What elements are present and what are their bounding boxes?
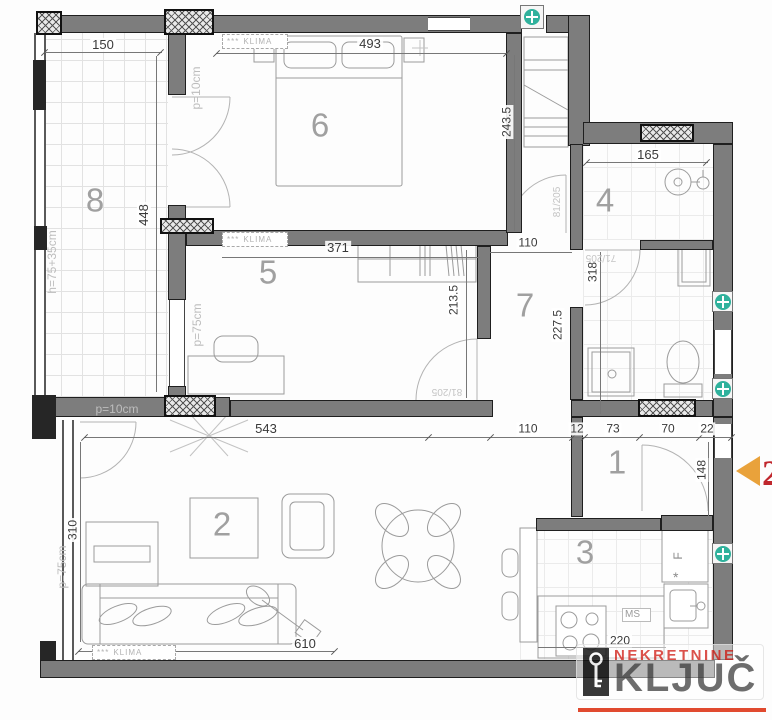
note-p10-living: p=10cm [95, 403, 138, 415]
dim-227: 227.5 [551, 308, 564, 342]
window [428, 17, 470, 31]
dim-line [156, 56, 157, 392]
dim-213: 213.5 [447, 283, 460, 317]
room-number-bedroom: 6 [311, 109, 329, 142]
door-label-71-bath: 71/205 [586, 252, 617, 262]
armchair-icon [282, 494, 334, 558]
closet-icon [524, 37, 568, 147]
dim-148: 148 [695, 458, 708, 482]
vent-icon [712, 378, 733, 399]
klima-label: KLIMA [243, 38, 272, 46]
pillar [36, 11, 62, 35]
key-icon [583, 648, 609, 696]
klima-stars: *** [227, 38, 239, 46]
klima-label: KLIMA [243, 236, 272, 244]
fridge-label: F [672, 552, 684, 559]
window [169, 300, 185, 386]
wall [477, 246, 491, 339]
dim-150: 150 [90, 38, 116, 52]
door-label-81-office: 81/205 [432, 386, 463, 396]
room-number-bathroom4: 4 [596, 184, 614, 217]
dim-543: 543 [253, 422, 279, 436]
wall [640, 240, 713, 250]
vent-icon [712, 543, 733, 564]
dim-165: 165 [635, 148, 661, 162]
klima-badge-office: *** KLIMA [222, 232, 288, 247]
dim-310: 310 [66, 518, 79, 542]
note-p75-living: p=75cm [56, 545, 68, 588]
klima-stars: *** [97, 649, 109, 657]
tv-stand-icon [86, 522, 158, 586]
dim-line [466, 250, 467, 398]
cross-mark [170, 414, 248, 456]
apartment-marker: 2 [762, 455, 772, 491]
room-number-terrace: 8 [86, 184, 104, 217]
dim-line [80, 442, 81, 642]
wall [536, 518, 661, 531]
note-p10-bedroom: p=10cm [190, 66, 202, 109]
floor-plan: 8 6 4 5 7 2 1 3 150 493 448 243.5 165 37… [0, 0, 772, 720]
dim-line [84, 437, 733, 438]
klima-label: KLIMA [113, 649, 142, 657]
dim-line [216, 53, 508, 54]
dim-610: 610 [292, 637, 318, 651]
logo-line-2: KLJUČ [614, 661, 757, 695]
sink-icon [664, 584, 708, 628]
freezer-star: * [673, 570, 678, 584]
agency-logo: NEKRETNINE KLJUČ [576, 644, 764, 700]
pillar [640, 124, 694, 142]
room-number-hall: 7 [516, 289, 534, 322]
pillar [638, 399, 696, 417]
dining-table-icon [369, 497, 466, 594]
room-number-kitchen: 3 [576, 536, 594, 569]
room-number-living: 2 [213, 508, 231, 541]
dim-70: 70 [659, 422, 676, 435]
dim-line [514, 55, 515, 231]
bar-counter-icon [502, 528, 537, 642]
door-label-81-closet: 81/205 [553, 187, 563, 218]
entry-niche [714, 424, 732, 458]
note-p75-office: p=75cm [191, 303, 203, 346]
wall [713, 144, 733, 417]
dim-22: 22 [698, 422, 715, 435]
furniture-layer [0, 0, 772, 720]
pillar [164, 395, 216, 417]
dim-line [490, 252, 572, 253]
dim-371: 371 [325, 241, 351, 255]
window-mullion [33, 60, 46, 110]
toilet-icon [664, 341, 702, 397]
balcony-double-door [172, 97, 230, 207]
vent-icon [712, 291, 733, 312]
corner-frame [32, 395, 56, 439]
logo-underline [578, 708, 766, 712]
dim-448: 448 [137, 202, 151, 228]
dim-12: 12 [568, 422, 585, 435]
bed-icon [254, 36, 428, 186]
dim-243: 243.5 [500, 105, 513, 139]
entrance-arrow-icon [736, 456, 760, 486]
pillar [160, 218, 214, 234]
vanity-icon [588, 348, 634, 396]
dim-318: 318 [586, 260, 599, 284]
klima-stars: *** [227, 236, 239, 244]
vent-icon [520, 5, 544, 29]
living-balcony-door [80, 422, 136, 478]
dim-110-row: 110 [516, 422, 539, 435]
fridge-icon [662, 528, 708, 582]
klima-badge-bedroom: *** KLIMA [222, 34, 288, 49]
pillar [164, 9, 214, 35]
shaft-window [714, 330, 732, 374]
room-number-office: 5 [259, 256, 277, 289]
dim-line [600, 252, 601, 414]
sofa-icon [82, 584, 296, 644]
wall [168, 33, 186, 95]
wall [230, 400, 493, 417]
dim-493: 493 [357, 37, 383, 51]
ms-label: MS [622, 608, 651, 622]
washing-machine-icon [665, 169, 709, 195]
wall [570, 307, 583, 400]
wall [570, 144, 583, 250]
dim-73: 73 [604, 422, 621, 435]
klima-badge-living: *** KLIMA [92, 645, 176, 660]
dim-110-hall: 110 [516, 236, 539, 249]
room-number-entry: 1 [608, 446, 626, 479]
wall [661, 515, 713, 531]
note-h-parapet: h=75+35cm [46, 230, 58, 293]
